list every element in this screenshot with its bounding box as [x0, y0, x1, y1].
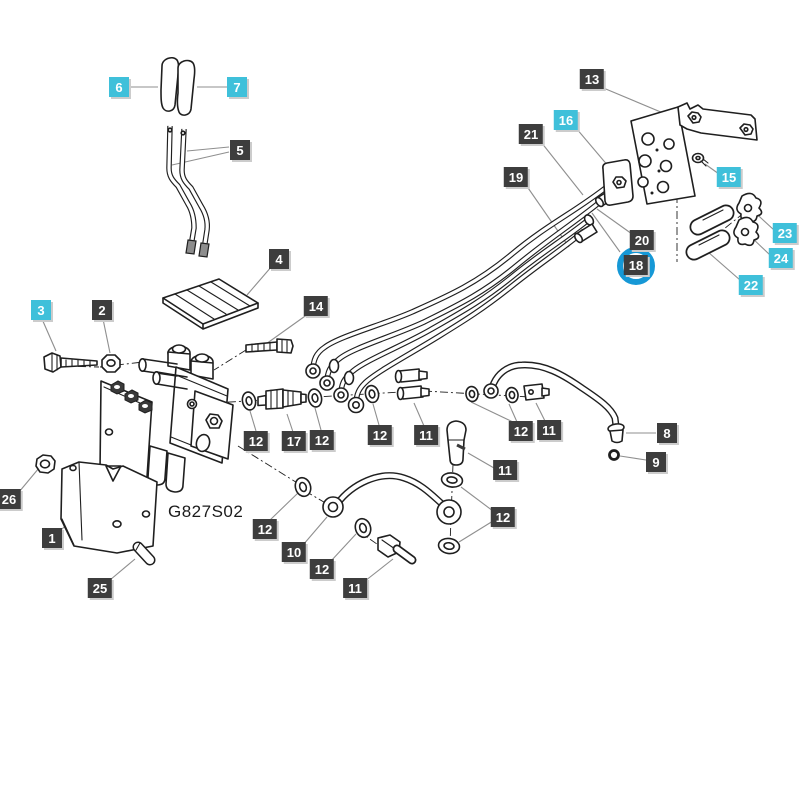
- bolt-3: [44, 353, 97, 372]
- callout-20[interactable]: 20: [630, 230, 654, 250]
- quick-couplers: [694, 193, 762, 252]
- callout-12-c[interactable]: 12: [368, 425, 392, 445]
- callout-13[interactable]: 13: [580, 69, 604, 89]
- part-code-label: G827S02: [168, 502, 243, 522]
- return-hose-8: [484, 365, 624, 460]
- callout-11-a[interactable]: 11: [414, 425, 438, 445]
- nut-26: [36, 455, 55, 473]
- callout-6[interactable]: 6: [109, 77, 129, 97]
- callout-1[interactable]: 1: [42, 528, 62, 548]
- plug-11: [447, 421, 466, 465]
- callout-9[interactable]: 9: [646, 452, 666, 472]
- nut-2: [102, 355, 120, 372]
- callout-14[interactable]: 14: [304, 296, 328, 316]
- callout-5[interactable]: 5: [230, 140, 250, 160]
- callout-12-b[interactable]: 12: [310, 430, 334, 450]
- callout-2[interactable]: 2: [92, 300, 112, 320]
- adapter-fitting-17: [258, 389, 306, 409]
- callout-18-highlighted[interactable]: 18: [624, 255, 648, 275]
- o-ring-9: [610, 451, 619, 460]
- callout-11-b[interactable]: 11: [537, 420, 561, 440]
- callout-12-g[interactable]: 12: [310, 559, 334, 579]
- callout-16[interactable]: 16: [554, 110, 578, 130]
- exploded-view-drawing: [0, 0, 800, 800]
- callout-12-f[interactable]: 12: [253, 519, 277, 539]
- callout-22[interactable]: 22: [739, 275, 763, 295]
- callout-24[interactable]: 24: [769, 248, 793, 268]
- callout-26[interactable]: 26: [0, 489, 21, 509]
- callout-17[interactable]: 17: [282, 431, 306, 451]
- banjo-bolt-fitting: [524, 384, 549, 400]
- callout-7[interactable]: 7: [227, 77, 247, 97]
- callout-10[interactable]: 10: [282, 542, 306, 562]
- spacer-plate-16: [603, 160, 633, 205]
- callout-12-e[interactable]: 12: [491, 507, 515, 527]
- lever-knobs: [161, 58, 195, 115]
- callout-21[interactable]: 21: [519, 124, 543, 144]
- callout-4[interactable]: 4: [269, 249, 289, 269]
- callout-25[interactable]: 25: [88, 578, 112, 598]
- callout-19[interactable]: 19: [504, 167, 528, 187]
- cover-plate: [163, 279, 258, 329]
- parts-diagram-page: { "figure": { "part_code": "G827S02" }, …: [0, 0, 800, 800]
- callout-12-a[interactable]: 12: [244, 431, 268, 451]
- callout-8[interactable]: 8: [657, 423, 677, 443]
- callout-11-d[interactable]: 11: [343, 578, 367, 598]
- upper-bracket-13: [631, 103, 757, 204]
- lower-bracket: [61, 462, 157, 553]
- callout-3[interactable]: 3: [31, 300, 51, 320]
- elbow-fittings: [396, 369, 430, 400]
- control-levers: [168, 126, 209, 257]
- callout-12-d[interactable]: 12: [509, 421, 533, 441]
- callout-23[interactable]: 23: [773, 223, 797, 243]
- callout-15[interactable]: 15: [717, 167, 741, 187]
- callout-11-c[interactable]: 11: [493, 460, 517, 480]
